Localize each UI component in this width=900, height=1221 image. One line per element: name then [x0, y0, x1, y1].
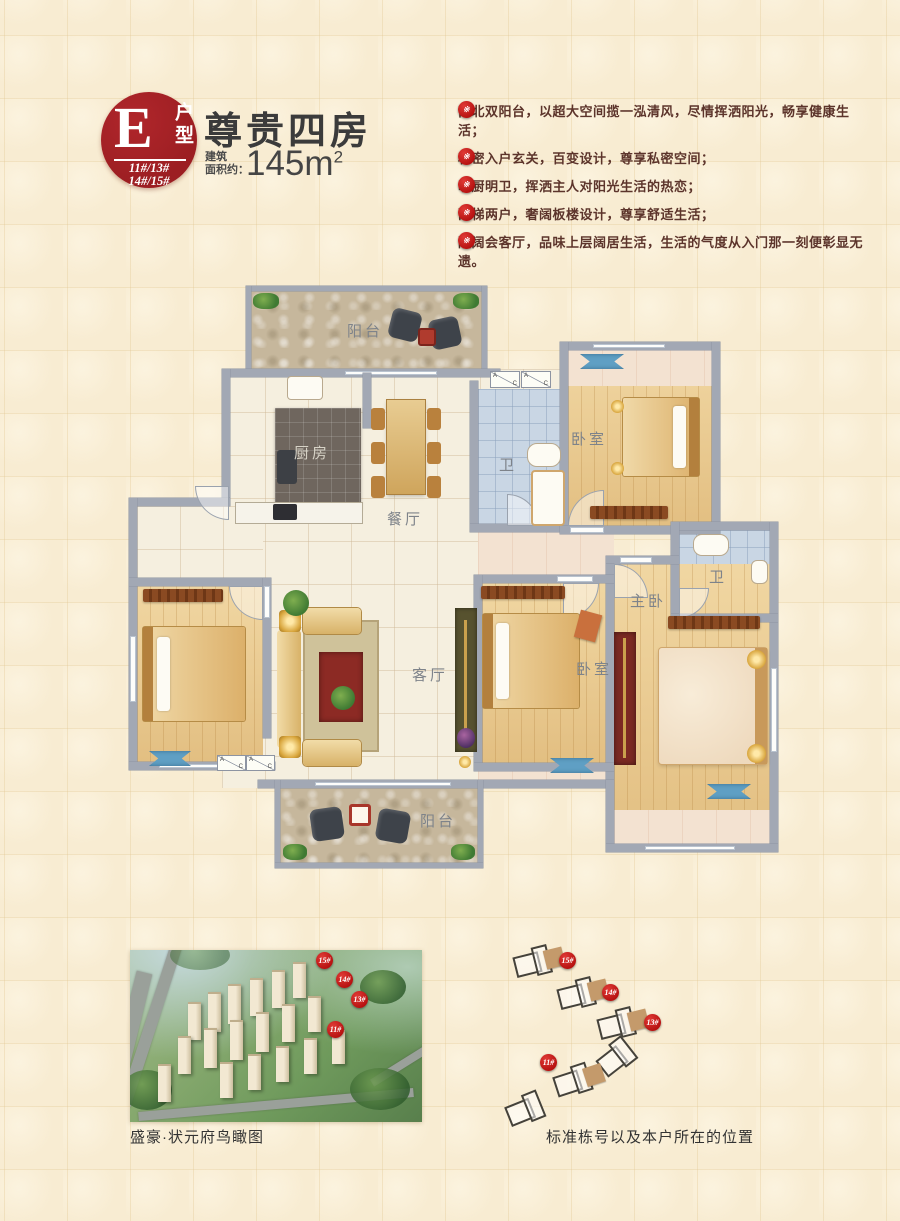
building-marker-15: 15#: [316, 952, 333, 969]
building-marker-14: 14#: [336, 971, 353, 988]
bed: [143, 627, 245, 721]
wall: [606, 780, 614, 852]
sofa: [277, 630, 301, 748]
building-marker-11: 11#: [327, 1021, 344, 1038]
ac-unit-box: AC: [521, 371, 551, 388]
planter: [283, 844, 307, 860]
tower: [282, 1004, 295, 1042]
ac-unit-box: AC: [217, 755, 246, 771]
wall: [129, 498, 137, 586]
nightstand-lamp: [611, 400, 624, 413]
site-diagram: 15# 14# 13# 11# 标准栋号以及本户所在的位置: [500, 940, 800, 1145]
room-label-master: 主卧: [620, 590, 676, 611]
bed: [483, 614, 579, 708]
vase: [459, 756, 471, 768]
tower: [188, 1002, 201, 1040]
bath2-sink: [693, 534, 729, 556]
dining-chair: [371, 408, 385, 430]
table-flowers: [331, 686, 355, 710]
wardrobe: [614, 632, 636, 765]
badge-buildings-line2: 14#/15#: [101, 174, 197, 189]
wall: [474, 763, 614, 771]
flyer-page: E 户型 11#/13# 14#/15# 尊贵四房 建筑 面积约： 145m2 …: [0, 0, 900, 1221]
dining-chair: [427, 476, 441, 498]
unit-type-label: 户型: [169, 102, 196, 148]
sofa-chair: [303, 608, 361, 634]
flower-pot: [457, 728, 475, 748]
balcony-table: [349, 804, 371, 826]
plant: [283, 590, 309, 616]
dining-chair: [371, 442, 385, 464]
floor-plan: AC AC AC AC: [115, 258, 805, 873]
door-gap: [264, 586, 270, 618]
window: [645, 846, 735, 850]
diagram-marker-14: 14#: [602, 984, 619, 1001]
kitchen-sink: [287, 376, 323, 400]
room-label-bath1: 卫: [493, 454, 523, 475]
room-label-bath2: 卫: [703, 566, 733, 587]
tower: [304, 1038, 317, 1074]
bath1-tub: [531, 470, 565, 526]
side-table: [279, 736, 301, 758]
wall: [275, 780, 280, 868]
unit-type-badge: E 户型 11#/13# 14#/15#: [101, 92, 197, 188]
balcony-chair: [309, 806, 345, 842]
planter: [453, 293, 479, 309]
balcony-table: [418, 328, 436, 346]
door-gap: [557, 576, 593, 582]
room-label-dining: 餐厅: [368, 508, 442, 529]
kitchen-cabinet: [235, 502, 363, 524]
feature-item: ※两梯两户，奢阔板楼设计，尊享舒适生活；: [458, 204, 868, 223]
feature-item: ※南北双阳台，以超大空间揽一泓清风，尽情挥洒阳光，畅享健康生活；: [458, 101, 868, 139]
wall: [478, 780, 483, 868]
diagram-marker-13: 13#: [644, 1014, 661, 1031]
building-footprint: [551, 1057, 610, 1102]
tower: [158, 1064, 171, 1102]
window: [345, 371, 437, 375]
sofa-chair: [303, 740, 361, 766]
tower: [272, 970, 285, 1008]
nightstand-lamp: [747, 650, 766, 669]
tower: [293, 962, 306, 998]
tower: [228, 984, 241, 1024]
wall: [482, 286, 487, 373]
ac-unit-box: AC: [490, 371, 520, 388]
area-label: 建筑 面积约：: [205, 151, 249, 177]
diagram-caption: 标准栋号以及本户所在的位置: [510, 1126, 790, 1147]
tower: [256, 1012, 269, 1052]
room-label-bedroom-center: 卧室: [566, 658, 622, 679]
door-gap: [620, 557, 652, 563]
balcony-door: [315, 782, 451, 786]
door-gap: [570, 527, 604, 533]
feature-item: ※私密入户玄关，百变设计，尊享私密空间；: [458, 148, 868, 167]
tower: [208, 992, 221, 1032]
nightstand-lamp: [747, 744, 766, 763]
planter: [253, 293, 279, 309]
tower: [230, 1020, 243, 1060]
diagram-marker-15: 15#: [559, 952, 576, 969]
nightstand-lamp: [611, 462, 624, 475]
wall: [712, 342, 720, 530]
wall: [275, 863, 483, 868]
wall: [470, 381, 478, 532]
planter: [451, 844, 475, 860]
aerial-photo: 15# 14# 13# 11#: [130, 950, 422, 1122]
bath2-toilet: [751, 560, 768, 584]
dining-chair: [427, 442, 441, 464]
room-label-kitchen: 厨房: [277, 442, 347, 463]
wall: [246, 286, 251, 373]
dresser: [481, 586, 565, 599]
building-footprint: [502, 1083, 561, 1130]
dresser: [143, 589, 223, 602]
room-label-balcony-bottom: 阳台: [403, 810, 473, 831]
dresser: [590, 506, 668, 519]
window: [130, 636, 136, 702]
room-label-living: 客厅: [398, 664, 462, 685]
tower: [308, 996, 321, 1032]
oven: [273, 504, 297, 520]
unit-letter: E: [114, 94, 153, 161]
dresser: [668, 616, 760, 629]
tower: [250, 978, 263, 1016]
wall: [474, 575, 614, 583]
area-value: 145m2: [246, 144, 343, 184]
ac-unit-box: AC: [246, 755, 275, 771]
wall: [129, 578, 271, 586]
diagram-marker-11: 11#: [540, 1054, 557, 1071]
wall: [246, 286, 487, 291]
room-label-balcony-top: 阳台: [330, 320, 400, 341]
tower: [248, 1054, 261, 1090]
tower: [276, 1046, 289, 1082]
bed: [623, 398, 699, 476]
room-label-bedroom-top-right: 卧室: [561, 428, 617, 449]
window: [593, 344, 665, 348]
tower: [220, 1062, 233, 1098]
window: [771, 668, 777, 752]
feature-item: ※明厨明卫，挥洒主人对阳光生活的热恋；: [458, 176, 868, 195]
dining-chair: [427, 408, 441, 430]
wall: [363, 373, 371, 428]
tower: [204, 1028, 217, 1068]
master-window-strip: [614, 810, 770, 844]
building-marker-13: 13#: [351, 991, 368, 1008]
tower: [178, 1036, 191, 1074]
aerial-caption: 盛豪·状元府鸟瞰图: [130, 1126, 264, 1147]
bath1-sink: [527, 443, 561, 467]
dining-table: [387, 400, 425, 494]
feature-list: ※南北双阳台，以超大空间揽一泓清风，尽情挥洒阳光，畅享健康生活； ※私密入户玄关…: [458, 101, 868, 279]
wall: [671, 522, 778, 530]
dining-chair: [371, 476, 385, 498]
